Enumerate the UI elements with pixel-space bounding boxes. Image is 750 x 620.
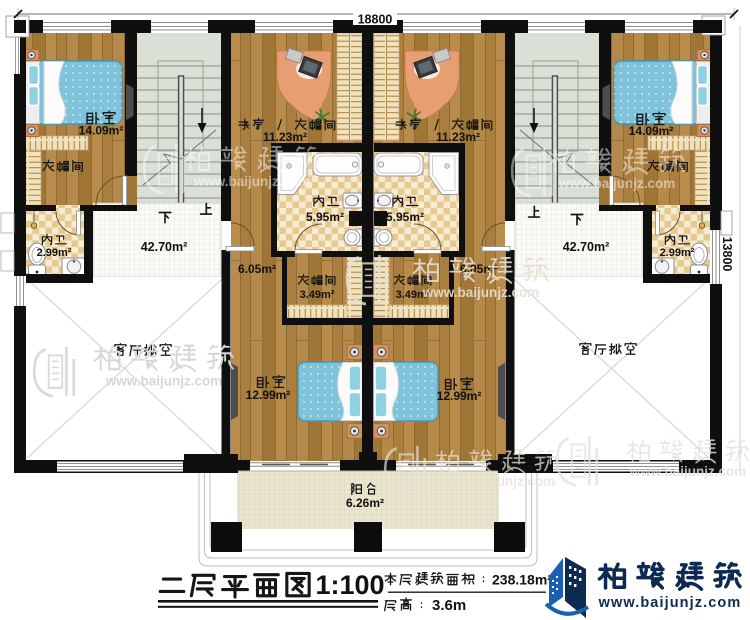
svg-text:11.23m²: 11.23m² — [263, 130, 307, 144]
svg-text:6.26m²: 6.26m² — [346, 496, 384, 510]
svg-text:5.95m²: 5.95m² — [306, 210, 344, 224]
svg-text:1:100: 1:100 — [315, 570, 384, 600]
svg-text:www.baijunjz.com: www.baijunjz.com — [629, 464, 747, 479]
svg-text:www.baijunjz.com: www.baijunjz.com — [422, 285, 540, 300]
svg-text:www.baijunjz.com: www.baijunjz.com — [193, 174, 311, 189]
svg-text:5.95m²: 5.95m² — [386, 210, 424, 224]
svg-text:6.05m²: 6.05m² — [238, 262, 276, 276]
svg-text:3.49m²: 3.49m² — [300, 289, 335, 301]
svg-text:www.baijunjz.com: www.baijunjz.com — [598, 595, 742, 611]
svg-text:12.99m²: 12.99m² — [246, 388, 291, 402]
svg-text:www.baijunjz.com: www.baijunjz.com — [558, 176, 676, 191]
svg-text:42.70m²: 42.70m² — [563, 240, 610, 254]
svg-text:www.baijunjz.com: www.baijunjz.com — [438, 474, 556, 489]
svg-text:14.09m²: 14.09m² — [79, 124, 124, 138]
svg-text:11.23m²: 11.23m² — [436, 130, 480, 144]
svg-text:42.70m²: 42.70m² — [141, 240, 188, 254]
svg-text:www.baijunjz.com: www.baijunjz.com — [105, 374, 223, 389]
svg-text:12.99m²: 12.99m² — [437, 389, 482, 403]
svg-text:2.99m²: 2.99m² — [660, 247, 695, 259]
svg-text:14.09m²: 14.09m² — [629, 124, 674, 138]
svg-text:238.18m²: 238.18m² — [492, 572, 552, 588]
svg-text:18800: 18800 — [358, 13, 393, 27]
svg-text:13800: 13800 — [720, 237, 734, 272]
svg-text:2.99m²: 2.99m² — [37, 247, 72, 259]
svg-text:3.6m: 3.6m — [432, 597, 466, 614]
